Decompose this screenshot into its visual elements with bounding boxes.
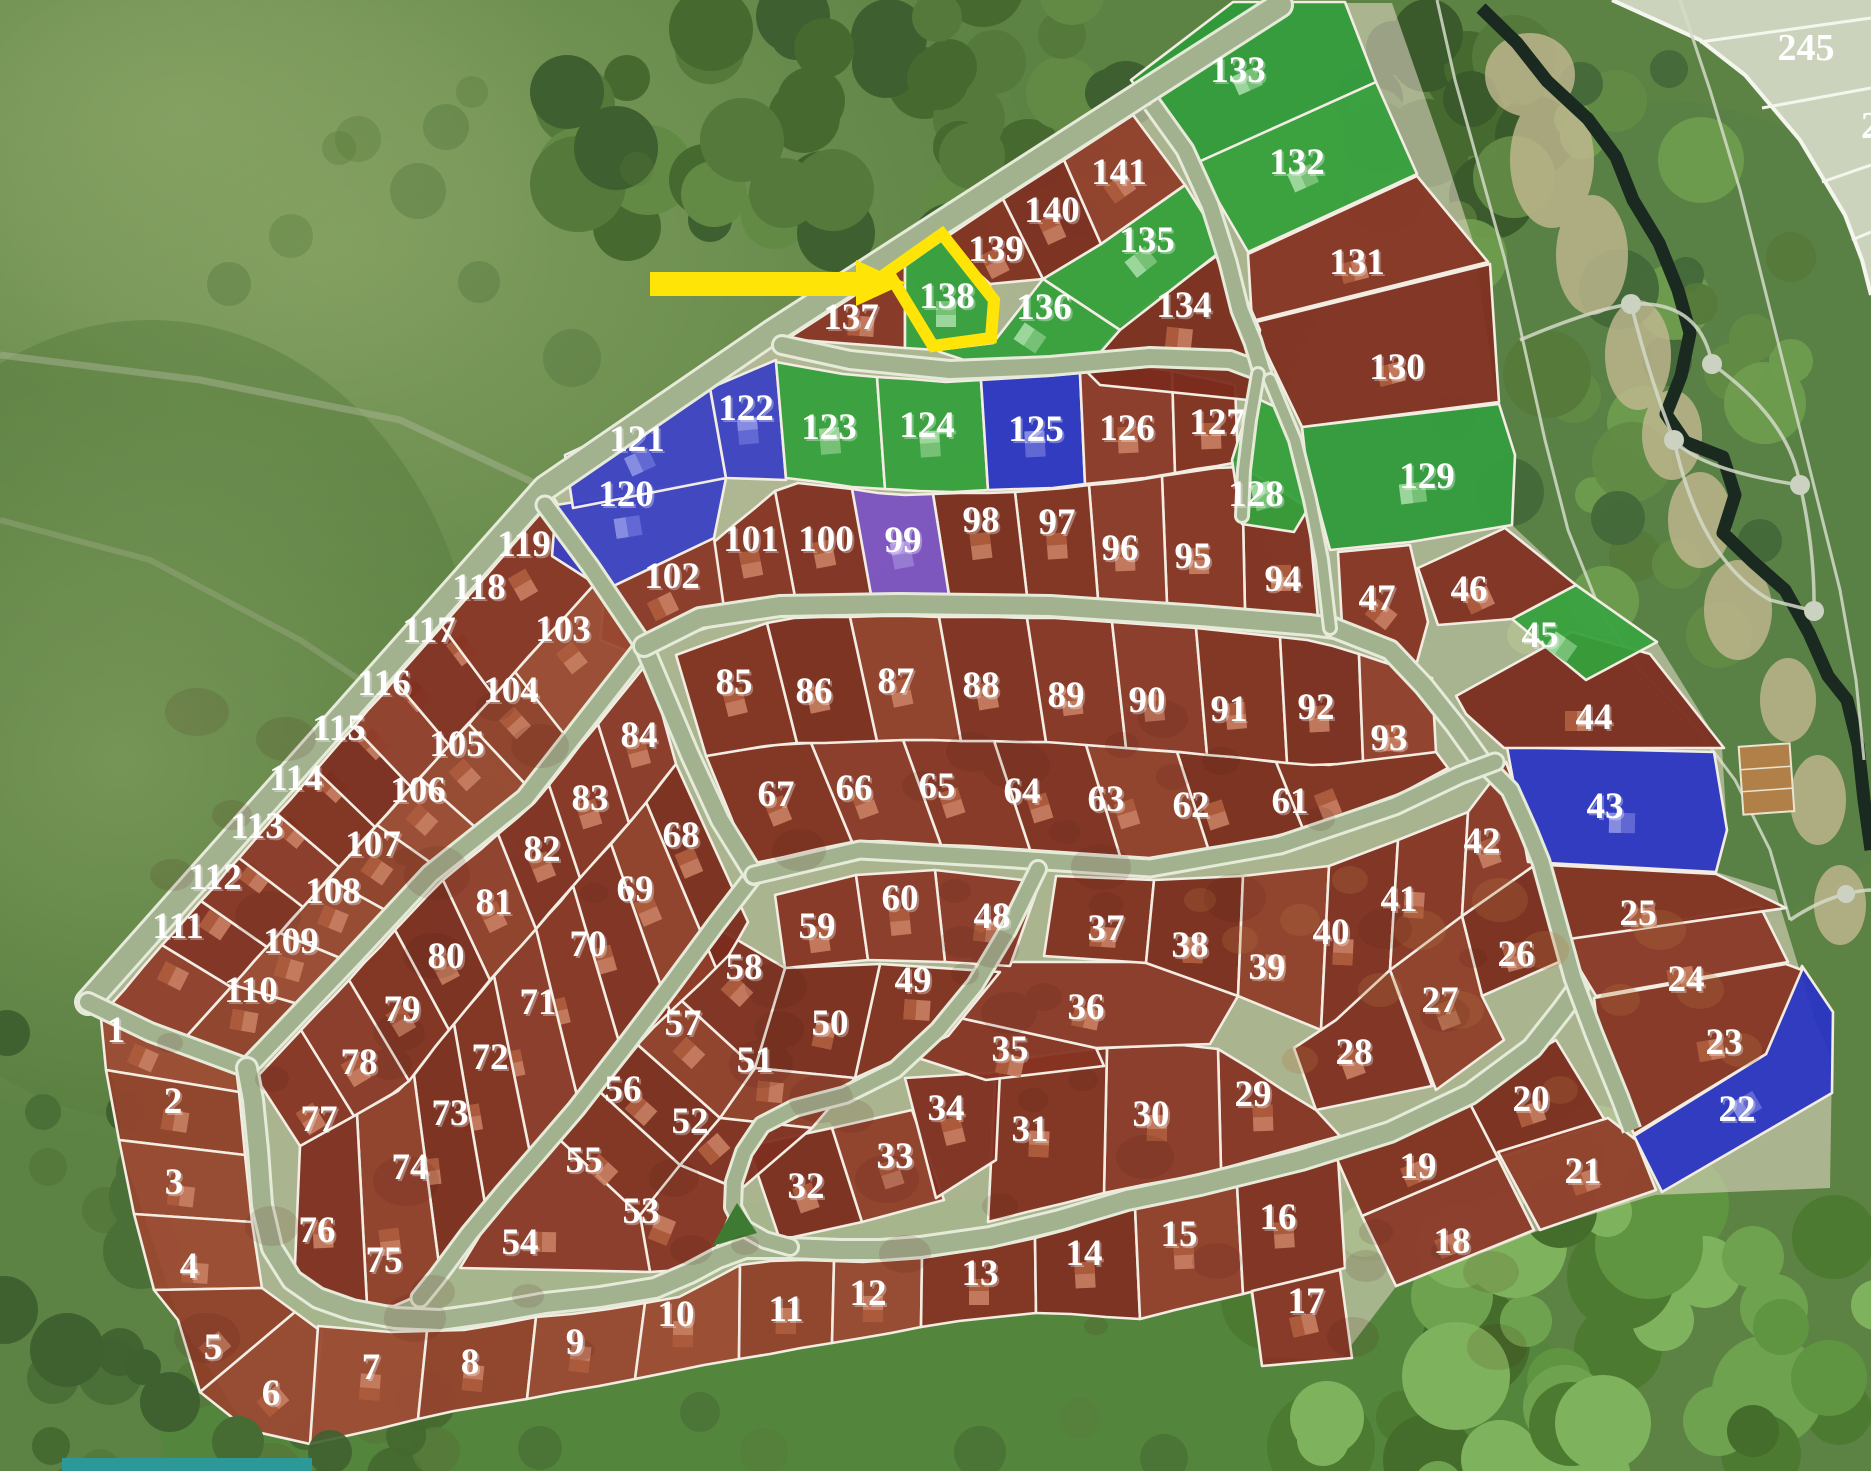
svg-text:3: 3 xyxy=(165,1162,184,1203)
svg-text:83: 83 xyxy=(572,778,609,819)
svg-text:73: 73 xyxy=(432,1093,469,1134)
svg-text:43: 43 xyxy=(1587,786,1624,827)
svg-text:59: 59 xyxy=(799,906,836,947)
svg-text:61: 61 xyxy=(1272,781,1309,822)
svg-text:80: 80 xyxy=(428,936,465,977)
svg-text:107: 107 xyxy=(345,824,401,865)
svg-text:53: 53 xyxy=(623,1191,660,1232)
svg-text:65: 65 xyxy=(919,766,956,807)
svg-text:141: 141 xyxy=(1091,152,1147,193)
svg-text:54: 54 xyxy=(502,1222,539,1263)
svg-text:116: 116 xyxy=(357,663,410,704)
svg-text:82: 82 xyxy=(524,829,561,870)
svg-text:39: 39 xyxy=(1249,947,1286,988)
svg-text:120: 120 xyxy=(598,474,654,515)
svg-text:1: 1 xyxy=(107,1010,126,1051)
svg-text:133: 133 xyxy=(1210,50,1266,91)
svg-text:21: 21 xyxy=(1565,1151,1602,1192)
svg-text:117: 117 xyxy=(402,610,455,651)
svg-text:50: 50 xyxy=(812,1003,849,1044)
svg-text:111: 111 xyxy=(152,906,203,947)
svg-text:9: 9 xyxy=(566,1322,585,1363)
svg-text:44: 44 xyxy=(1576,697,1613,738)
svg-text:126: 126 xyxy=(1099,408,1155,449)
svg-text:48: 48 xyxy=(974,896,1011,937)
svg-text:17: 17 xyxy=(1288,1281,1325,1322)
svg-text:51: 51 xyxy=(737,1040,774,1081)
svg-text:110: 110 xyxy=(224,970,277,1011)
svg-text:49: 49 xyxy=(895,960,932,1001)
svg-text:71: 71 xyxy=(520,982,557,1023)
svg-text:138: 138 xyxy=(919,276,975,317)
svg-text:124: 124 xyxy=(899,405,955,446)
svg-text:15: 15 xyxy=(1161,1214,1198,1255)
svg-text:115: 115 xyxy=(312,708,365,749)
svg-text:56: 56 xyxy=(605,1069,642,1110)
svg-text:5: 5 xyxy=(204,1327,223,1368)
svg-text:11: 11 xyxy=(769,1289,804,1330)
svg-text:101: 101 xyxy=(723,519,779,560)
svg-text:35: 35 xyxy=(992,1029,1029,1070)
svg-text:104: 104 xyxy=(483,670,539,711)
svg-text:132: 132 xyxy=(1269,142,1325,183)
svg-text:8: 8 xyxy=(461,1342,480,1383)
svg-text:130: 130 xyxy=(1369,347,1425,388)
svg-text:25: 25 xyxy=(1620,893,1657,934)
svg-text:245: 245 xyxy=(1778,27,1835,69)
svg-text:62: 62 xyxy=(1173,785,1210,826)
svg-text:45: 45 xyxy=(1522,615,1559,656)
svg-text:27: 27 xyxy=(1422,980,1459,1021)
svg-text:131: 131 xyxy=(1329,242,1385,283)
svg-text:24: 24 xyxy=(1668,959,1705,1000)
svg-text:127: 127 xyxy=(1189,402,1245,443)
svg-text:12: 12 xyxy=(850,1273,887,1314)
svg-text:33: 33 xyxy=(877,1136,914,1177)
svg-text:41: 41 xyxy=(1381,879,1418,920)
svg-text:38: 38 xyxy=(1172,925,1209,966)
svg-text:134: 134 xyxy=(1156,285,1212,326)
svg-text:121: 121 xyxy=(609,419,665,460)
svg-text:47: 47 xyxy=(1359,578,1396,619)
svg-text:72: 72 xyxy=(472,1037,509,1078)
svg-text:74: 74 xyxy=(392,1147,429,1188)
svg-text:100: 100 xyxy=(798,519,854,560)
svg-text:122: 122 xyxy=(718,388,774,429)
svg-text:94: 94 xyxy=(1265,559,1302,600)
svg-text:22: 22 xyxy=(1719,1089,1756,1130)
svg-text:69: 69 xyxy=(617,869,654,910)
svg-text:13: 13 xyxy=(962,1253,999,1294)
svg-text:34: 34 xyxy=(928,1088,965,1129)
svg-text:81: 81 xyxy=(476,882,513,923)
svg-text:140: 140 xyxy=(1024,190,1080,231)
svg-text:123: 123 xyxy=(801,407,857,448)
svg-text:86: 86 xyxy=(796,671,833,712)
svg-text:98: 98 xyxy=(963,500,1000,541)
svg-text:99: 99 xyxy=(885,520,922,561)
svg-text:30: 30 xyxy=(1133,1094,1170,1135)
svg-text:28: 28 xyxy=(1336,1032,1373,1073)
svg-text:90: 90 xyxy=(1129,680,1166,721)
svg-text:91: 91 xyxy=(1211,689,1248,730)
svg-text:93: 93 xyxy=(1371,718,1408,759)
svg-text:87: 87 xyxy=(878,661,915,702)
svg-text:97: 97 xyxy=(1039,502,1076,543)
svg-text:7: 7 xyxy=(362,1347,381,1388)
svg-text:52: 52 xyxy=(672,1101,709,1142)
svg-text:76: 76 xyxy=(299,1210,336,1251)
svg-text:2: 2 xyxy=(164,1081,183,1122)
svg-text:78: 78 xyxy=(341,1042,378,1083)
svg-text:55: 55 xyxy=(566,1140,603,1181)
svg-text:42: 42 xyxy=(1464,821,1501,862)
svg-text:29: 29 xyxy=(1235,1074,1272,1115)
svg-text:60: 60 xyxy=(882,878,919,919)
svg-text:102: 102 xyxy=(644,556,700,597)
svg-text:85: 85 xyxy=(716,662,753,703)
svg-text:108: 108 xyxy=(305,871,361,912)
svg-text:77: 77 xyxy=(301,1099,338,1140)
svg-text:18: 18 xyxy=(1434,1221,1471,1262)
svg-text:96: 96 xyxy=(1102,528,1139,569)
svg-text:58: 58 xyxy=(726,947,763,988)
svg-text:57: 57 xyxy=(665,1003,702,1044)
svg-text:37: 37 xyxy=(1088,908,1125,949)
svg-text:10: 10 xyxy=(658,1294,695,1335)
svg-text:129: 129 xyxy=(1399,456,1455,497)
svg-text:70: 70 xyxy=(570,924,607,965)
svg-text:63: 63 xyxy=(1088,779,1125,820)
svg-text:84: 84 xyxy=(621,715,658,756)
svg-text:95: 95 xyxy=(1175,536,1212,577)
svg-text:40: 40 xyxy=(1313,912,1350,953)
svg-text:89: 89 xyxy=(1048,675,1085,716)
svg-text:106: 106 xyxy=(390,770,446,811)
svg-text:92: 92 xyxy=(1298,687,1335,728)
svg-text:139: 139 xyxy=(968,229,1024,270)
svg-text:128: 128 xyxy=(1228,474,1284,515)
svg-text:114: 114 xyxy=(269,758,322,799)
svg-text:20: 20 xyxy=(1513,1079,1550,1120)
svg-text:6: 6 xyxy=(262,1373,281,1414)
svg-text:88: 88 xyxy=(963,665,1000,706)
svg-text:32: 32 xyxy=(788,1166,825,1207)
svg-text:4: 4 xyxy=(180,1246,199,1287)
svg-text:109: 109 xyxy=(263,921,319,962)
svg-text:26: 26 xyxy=(1498,934,1535,975)
svg-text:137: 137 xyxy=(823,297,879,338)
svg-text:31: 31 xyxy=(1012,1109,1049,1150)
svg-text:23: 23 xyxy=(1706,1022,1743,1063)
svg-text:64: 64 xyxy=(1004,771,1041,812)
svg-text:24: 24 xyxy=(1861,105,1871,147)
svg-text:68: 68 xyxy=(663,815,700,856)
svg-text:103: 103 xyxy=(535,609,591,650)
svg-text:66: 66 xyxy=(836,768,873,809)
svg-text:67: 67 xyxy=(758,774,795,815)
svg-text:36: 36 xyxy=(1068,987,1105,1028)
svg-text:135: 135 xyxy=(1119,220,1175,261)
svg-text:14: 14 xyxy=(1066,1233,1103,1274)
svg-text:16: 16 xyxy=(1260,1197,1297,1238)
svg-text:79: 79 xyxy=(384,989,421,1030)
svg-text:118: 118 xyxy=(452,567,505,608)
svg-text:75: 75 xyxy=(366,1240,403,1281)
svg-text:112: 112 xyxy=(188,857,241,898)
svg-text:105: 105 xyxy=(429,724,485,765)
svg-text:19: 19 xyxy=(1400,1146,1437,1187)
svg-text:113: 113 xyxy=(230,806,283,847)
svg-text:119: 119 xyxy=(497,524,550,565)
svg-text:136: 136 xyxy=(1016,287,1072,328)
svg-text:46: 46 xyxy=(1451,569,1488,610)
svg-text:125: 125 xyxy=(1008,409,1064,450)
